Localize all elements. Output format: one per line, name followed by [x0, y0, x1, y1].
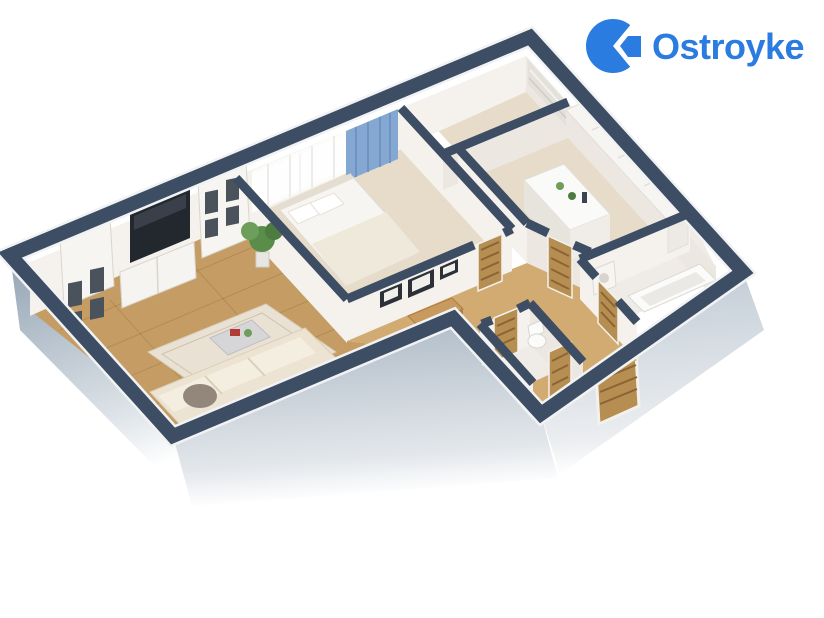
logo-icon: [586, 12, 641, 80]
logo-text: Ostroyke: [652, 26, 804, 67]
logo: Ostroyke: [586, 12, 804, 80]
floor-plan-render: Ostroyke: [0, 0, 824, 618]
plant-on-counter: [556, 182, 564, 190]
kitchen-door: [548, 236, 572, 298]
bedroom-door: [478, 234, 502, 291]
floor-plan-canvas: Ostroyke: [0, 0, 824, 618]
red-book: [230, 329, 240, 336]
pouf: [183, 384, 217, 408]
bottle: [582, 192, 587, 203]
plant-on-counter: [568, 192, 576, 200]
